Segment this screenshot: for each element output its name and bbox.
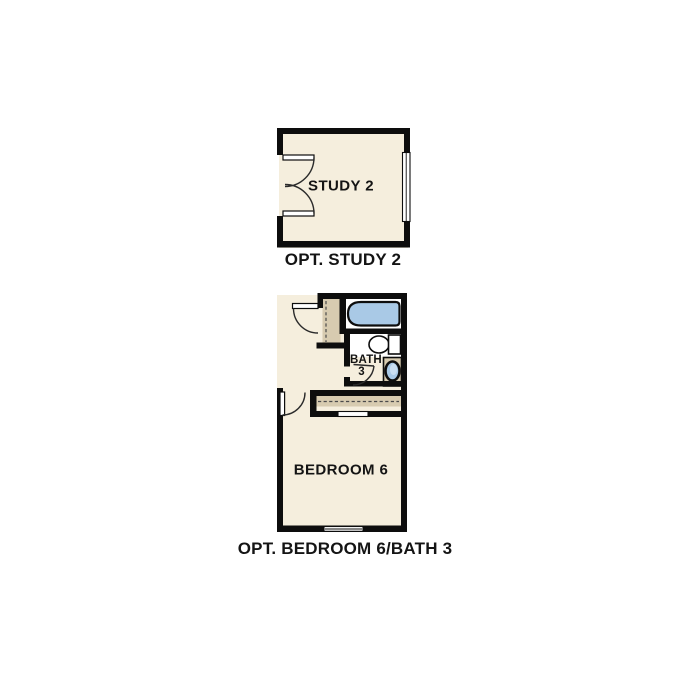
tub-alcove-wall-left: [340, 299, 347, 333]
linen-wall-bottom: [317, 343, 346, 349]
study-window: [403, 153, 411, 222]
study-room-label: STUDY 2: [308, 178, 374, 195]
floorplan-graphics: [0, 0, 687, 687]
closet-opening: [338, 412, 368, 417]
toilet-bowl: [369, 336, 389, 353]
study-wall-bottom: [277, 241, 410, 248]
study-wall-left-upper: [277, 128, 283, 155]
closet-wall-left: [310, 390, 317, 417]
bath-label-line1: BATH: [350, 354, 382, 366]
study-caption: OPT. STUDY 2: [285, 250, 401, 270]
unit-wall-top: [318, 293, 407, 299]
study-door-leaf-top: [283, 155, 314, 160]
bedroom-bath-plan: [277, 293, 407, 532]
study-wall-left-lower: [277, 216, 283, 248]
study-wall-top: [277, 128, 410, 134]
bathtub: [348, 302, 400, 326]
study-door-leaf-bottom: [283, 211, 314, 216]
bath-room-label: BATH 3: [350, 354, 382, 378]
closet-wall-top: [310, 390, 407, 396]
bedroom-bath-caption: OPT. BEDROOM 6/BATH 3: [238, 539, 453, 559]
bedroom-window: [324, 527, 363, 532]
bedroom-room-label: BEDROOM 6: [294, 462, 388, 479]
toilet-tank: [389, 335, 401, 354]
linen-closet: [323, 299, 341, 343]
bath-label-line2: 3: [350, 366, 373, 378]
floorplan-page: STUDY 2 OPT. STUDY 2 BATH 3 BEDROOM 6 OP…: [0, 0, 687, 687]
bedroom-closet: [316, 396, 401, 407]
toilet: [369, 335, 401, 354]
bedroom-door-leaf: [280, 392, 285, 416]
hall-entry-door-leaf: [293, 304, 319, 309]
